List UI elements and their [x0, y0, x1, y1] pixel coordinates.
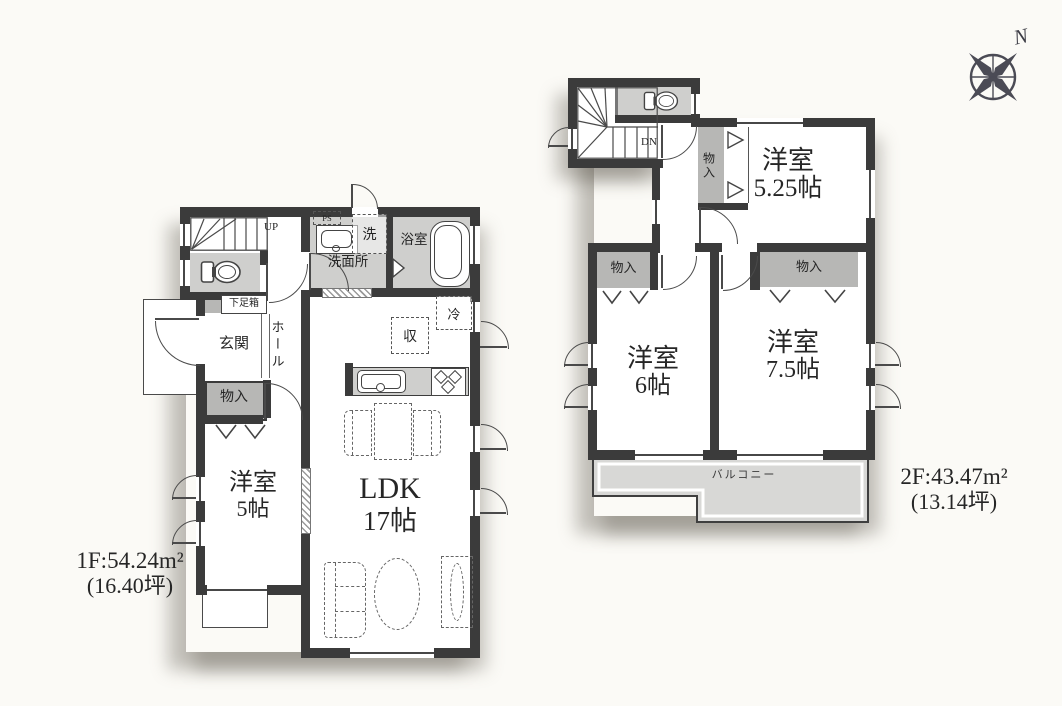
window-leaf	[875, 406, 899, 408]
toilet-fixture	[200, 258, 244, 286]
compass-icon: N	[948, 20, 1048, 120]
bedroom-2f-b-label: 洋室 6帖	[597, 344, 709, 400]
door-leaf	[264, 383, 266, 419]
floor1-area-label: 1F:54.24m² (16.40坪)	[55, 548, 205, 598]
wall	[345, 363, 353, 395]
ps-label: PS	[322, 213, 331, 223]
shoebox-label: 下足箱	[221, 295, 267, 314]
genkan-label: 玄関	[208, 336, 260, 353]
bathtub	[430, 221, 470, 287]
hall-label: ホール	[269, 300, 284, 390]
stairs-dn-label: DN	[641, 136, 667, 148]
hanger-marks	[212, 424, 270, 440]
window	[735, 450, 825, 460]
stairs-up-label: UP	[264, 221, 290, 233]
hanger-marks	[765, 289, 855, 304]
wall	[710, 252, 719, 460]
bedroom-2f-a-label: 洋室 5.25帖	[714, 146, 862, 203]
stairs-1f	[190, 217, 268, 251]
wall	[695, 243, 722, 252]
door-leaf	[155, 318, 199, 320]
ldk-label: LDK 17帖	[330, 472, 450, 536]
window	[866, 342, 875, 370]
dining-table	[374, 403, 412, 460]
window	[588, 342, 597, 370]
floor2-area-label: 2F:43.47m² (13.14坪)	[878, 464, 1030, 514]
wall	[196, 415, 263, 424]
balcony-label: バルコニー	[698, 469, 790, 481]
window	[633, 450, 705, 460]
washroom-label: 洗面所	[312, 254, 384, 269]
window	[205, 585, 269, 595]
ps-box: PS	[313, 211, 341, 225]
rug-oval	[374, 558, 420, 630]
hanger-marks	[600, 290, 652, 305]
window-leaf	[172, 542, 196, 544]
window	[568, 127, 577, 151]
door-leaf	[699, 207, 701, 243]
fridge-box: 冷	[436, 296, 472, 330]
window	[470, 424, 480, 454]
wall	[588, 450, 875, 460]
dining-chair	[344, 410, 372, 456]
window-leaf	[564, 406, 588, 408]
window-leaf	[172, 497, 196, 499]
window-leaf	[548, 145, 568, 147]
closet-a-label: 物入	[701, 140, 714, 192]
door-leaf	[661, 255, 663, 288]
balcony-outline	[591, 456, 873, 526]
compass-north-text: N	[1010, 23, 1031, 50]
window	[588, 384, 597, 412]
window	[735, 118, 805, 127]
window	[196, 520, 205, 548]
window-leaf	[480, 448, 506, 450]
washer-label: 洗	[363, 224, 377, 244]
window-leaf	[875, 364, 899, 366]
window	[866, 168, 875, 220]
wall	[568, 78, 577, 168]
window-leaf	[564, 364, 588, 366]
washer-box: 洗	[352, 214, 387, 254]
terrace-step	[202, 594, 268, 628]
window-leaf	[480, 512, 506, 514]
wall	[588, 243, 658, 252]
pantry-label: 収	[403, 326, 417, 346]
tv-board	[441, 556, 473, 628]
dining-chair	[413, 410, 441, 456]
door-leaf	[480, 346, 507, 348]
fridge-label: 冷	[447, 304, 460, 323]
storage-1f-label: 物入	[205, 390, 263, 406]
floor-plan-canvas: 洗 PS 冷 収 UP	[0, 0, 1062, 706]
toilet-fixture	[640, 89, 684, 113]
wall	[568, 78, 700, 87]
window	[470, 488, 480, 518]
door-leaf	[351, 184, 353, 208]
bath-door-icon	[392, 258, 406, 278]
closet-b-label: 物入	[597, 261, 650, 276]
wall	[568, 159, 663, 168]
pantry-box: 収	[391, 317, 429, 354]
door-leaf	[309, 253, 311, 290]
closet-c-label: 物入	[760, 260, 858, 275]
bathroom-label: 浴室	[393, 232, 435, 247]
door-leaf	[721, 255, 723, 289]
window	[348, 648, 436, 658]
bedroom-2f-c-label: 洋室 7.5帖	[722, 328, 864, 384]
window	[180, 222, 190, 248]
wall	[757, 243, 875, 252]
wall	[650, 252, 658, 290]
sofa	[324, 562, 366, 638]
bedroom-1f-label: 洋室 5帖	[203, 470, 303, 522]
window	[470, 224, 480, 266]
window	[652, 198, 660, 226]
window	[866, 384, 875, 412]
stove	[431, 368, 466, 396]
kitchen-sink	[357, 370, 406, 393]
window	[180, 258, 190, 288]
window	[691, 92, 700, 116]
